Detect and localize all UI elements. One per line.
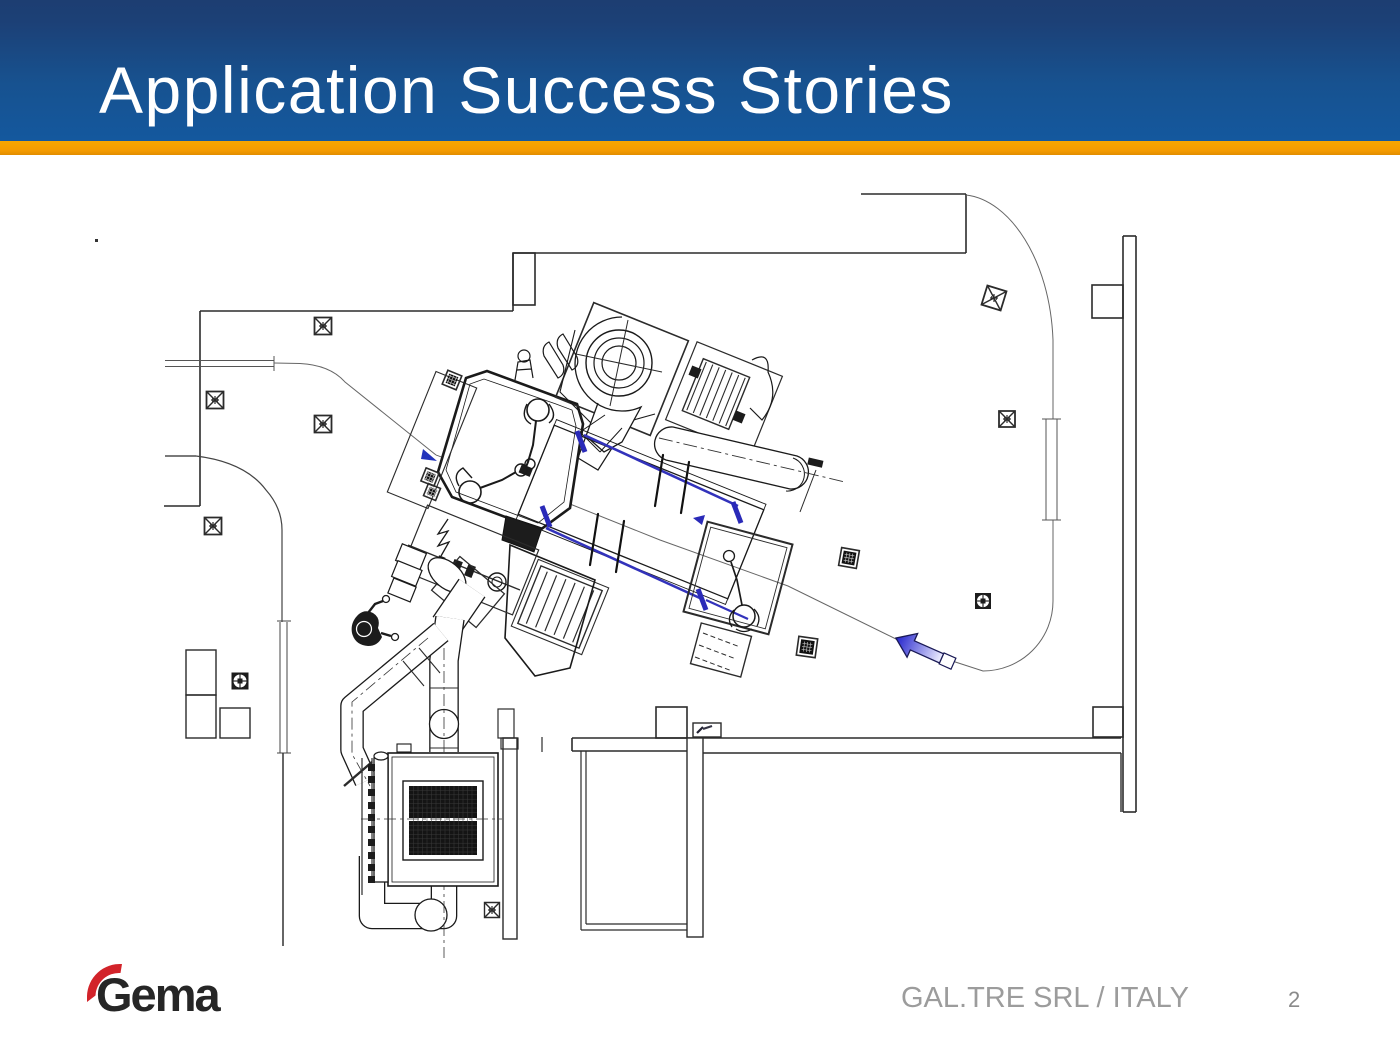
svg-text:Gema: Gema bbox=[96, 968, 221, 1021]
